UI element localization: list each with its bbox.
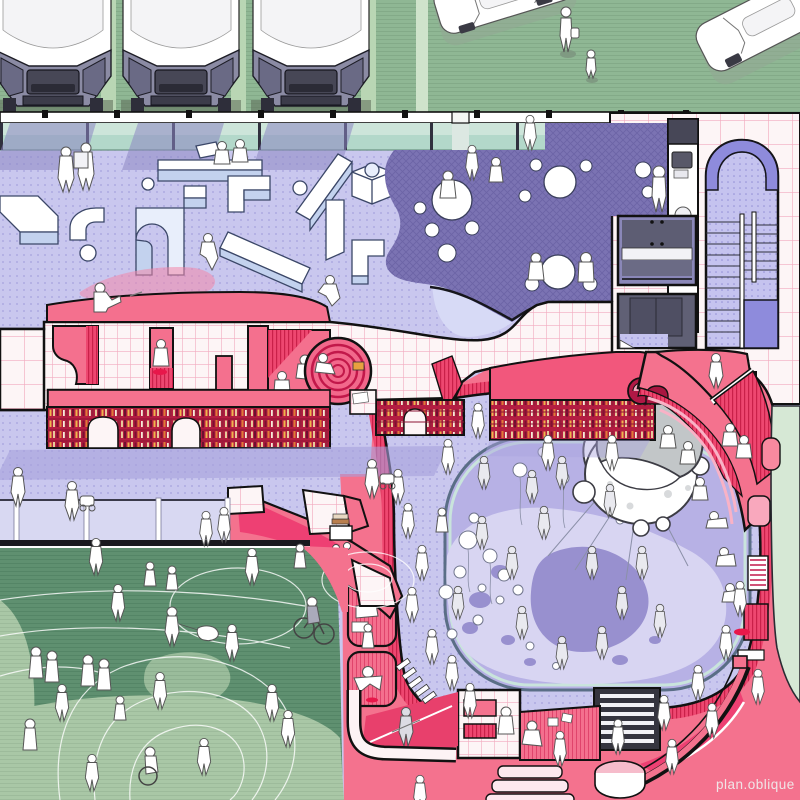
- svg-text:plan.oblique: plan.oblique: [716, 777, 795, 792]
